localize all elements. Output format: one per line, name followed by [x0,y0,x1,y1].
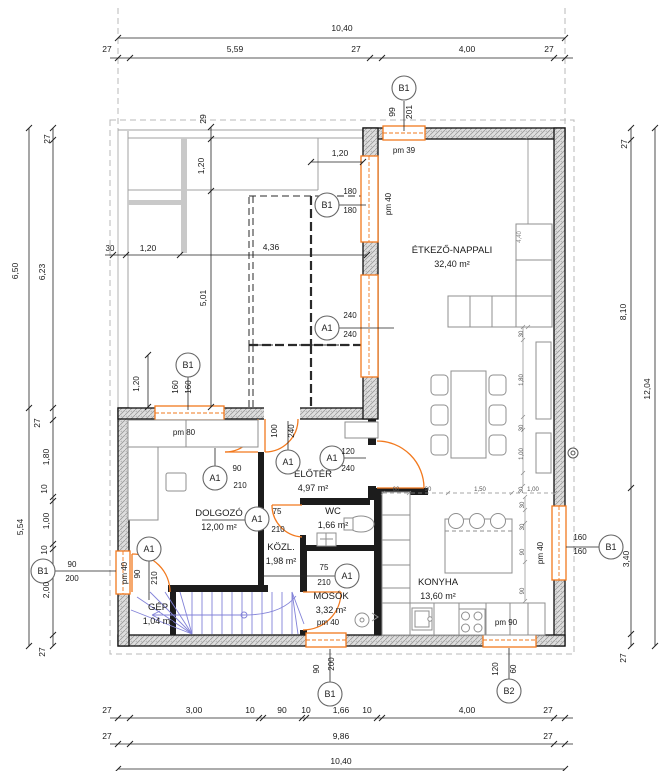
dim-label: 27 [543,731,553,741]
marker-label: B1 [605,542,616,552]
dim-label: 180 [343,187,357,196]
dim-label: 210 [233,481,247,490]
room-name: ÉTKEZŐ-NAPPALI [412,245,493,256]
dim-label: 27 [618,653,628,663]
room-name: WC [325,506,341,517]
dim-label: 6,23 [37,263,47,280]
dim-label: 3,00 [186,705,203,715]
room-label-group: MOSÓK3,32 m² [313,591,349,615]
dim-label: 90 [520,548,526,555]
room-name: KONYHA [418,577,459,588]
dim-label: 27 [351,44,361,54]
dim-label: 100 [270,424,279,438]
room-name: MOSÓK [313,591,349,602]
floor-plan: ÉTKEZŐ-NAPPALI32,40 m²DOLGOZÓ12,00 m²ELŐ… [0,0,671,771]
dim-label: 6,50 [10,262,20,279]
dim-label: 160 [184,380,193,394]
dim-label: 30 [519,424,525,431]
section-marker-b1: B1 [599,535,623,559]
marker-label: B1 [398,83,409,93]
room-area: 1,66 m² [318,520,349,530]
floor-plan-page: ÉTKEZŐ-NAPPALI32,40 m²DOLGOZÓ12,00 m²ELŐ… [0,0,671,771]
dim-label: 30 [106,244,115,253]
section-marker-a1: A1 [245,507,269,531]
section-marker-b1: B1 [176,353,200,377]
dim-label: 27 [32,418,42,428]
dim-label: 240 [343,311,357,320]
dim-label: 10 [301,705,311,715]
dim-label: 5,01 [198,289,208,306]
marker-label: A1 [209,473,220,483]
dim-label: 4,40 [517,231,523,243]
dim-label: 210 [150,571,159,585]
dim-label: 210 [317,578,331,587]
toilet [344,516,374,532]
dim-label: 30 [520,523,526,530]
dim-label: 210 [271,525,285,534]
room-name: KÖZL. [267,542,294,553]
eloter-living-door [377,441,424,488]
dim-label: pm 39 [393,146,416,155]
dim-label: 90 [520,587,526,594]
dim-label: 1,20 [132,376,141,392]
dim-label: 120 [491,662,500,676]
stove [459,609,485,635]
marker-label: A1 [326,453,337,463]
section-marker-a1: A1 [315,316,339,340]
dim-label: 1,00 [41,512,51,529]
room-label-group: ÉTKEZŐ-NAPPALI32,40 m² [412,245,493,269]
dim-label: 27 [543,705,553,715]
dim-label: 75 [273,507,282,516]
dim-label: 75 [320,563,329,572]
dim-label: 240 [341,464,355,473]
dim-label: 90 [312,664,321,673]
dim-label: 10 [39,545,49,555]
dim-label: 1,20 [332,148,349,158]
dim-label: pm 90 [495,618,518,627]
dim-label: 200 [65,574,79,583]
dim-label: 9,86 [333,731,350,741]
window-living-east [552,506,566,580]
dim-label: 10,40 [331,23,353,33]
room-area: 1,98 m² [266,556,297,566]
marker-label: A1 [321,323,332,333]
dim-label: 1,50 [474,487,486,493]
flue-vent [568,448,578,458]
marker-label: A1 [282,457,293,467]
room-area: 32,40 m² [434,259,470,269]
dim-label: 90 [277,705,287,715]
dim-label: 8,10 [618,303,628,320]
dim-label: 1,20 [196,157,206,174]
room-area: 13,60 m² [420,591,456,601]
dim-label: 1,00 [519,448,525,460]
dim-label: pm 40 [384,192,393,215]
radiator [536,342,551,419]
dim-label: 12,04 [642,378,652,400]
dim-label: 10 [39,484,49,494]
section-marker-a1: A1 [203,466,227,490]
dim-label: 10 [362,705,372,715]
section-marker-b1: B1 [392,76,416,100]
terrace-sliding-door [361,275,378,377]
dim-label: 30 [520,501,526,508]
kitchen-island [445,514,512,574]
dim-label: 2,00 [41,581,51,598]
dim-label: 60 [393,487,400,493]
sink [412,608,432,630]
section-marker-b1: B1 [315,193,339,217]
dim-label: 30 [519,330,525,337]
dim-label: 1,80 [41,448,51,465]
window-pm80 [155,406,224,420]
dim-label: pm 80 [173,428,196,437]
dim-label: 4,00 [459,705,476,715]
dim-label: 201 [404,105,414,119]
section-marker-b2: B2 [497,679,521,703]
kitchen-tall-cabinets [382,492,410,603]
dining-table [451,371,486,458]
dim-label: 27 [102,44,112,54]
dim-label: 160 [573,533,587,542]
dim-label: 27 [37,647,47,657]
sofa [448,296,516,327]
dim-label: 90 [233,464,242,473]
room-label-group: ELŐTÉR4,97 m² [294,469,332,493]
dim-label: 90 [425,487,432,493]
room-area: 12,00 m² [201,522,237,532]
marker-label: B1 [324,689,335,699]
dim-label: 5,59 [227,44,244,54]
dim-label: 90 [133,569,142,578]
section-marker-b1: B1 [31,559,55,583]
dim-label: 160 [573,547,587,556]
dim-label: 160 [171,380,180,394]
dim-label: 27 [544,44,554,54]
room-name: DOLGOZÓ [195,508,243,519]
kitchen-counter [382,603,545,635]
room-area: 4,97 m² [298,483,329,493]
section-marker-a1: A1 [276,450,300,474]
dim-label: 240 [287,424,296,438]
marker-label: B1 [182,360,193,370]
dim-label: 120 [341,447,355,456]
stairs [131,592,304,634]
section-marker-a1: A1 [137,537,161,561]
dim-label: pm 40 [120,561,129,584]
dim-label: 90 [68,560,77,569]
window-terrace-upper [361,156,378,242]
marker-label: B1 [37,566,48,576]
marker-label: B2 [503,686,514,696]
dim-label: 4,00 [459,44,476,54]
marker-label: A1 [251,514,262,524]
dim-label: 10,40 [330,756,352,766]
dim-label: 5,54 [15,518,25,535]
marker-label: B1 [321,200,332,210]
section-marker-b1: B1 [318,682,342,706]
dim-label: 30 [519,486,525,493]
dim-label: 29 [198,114,208,124]
hand-basin [317,533,336,546]
dim-label: 1,66 [333,705,350,715]
dim-label: 4,36 [263,242,280,252]
dim-label: pm 40 [536,541,545,564]
room-label-group: KÖZL.1,98 m² [266,542,297,566]
dim-label: 10 [245,705,255,715]
dim-label: 27 [102,705,112,715]
marker-label: A1 [341,571,352,581]
dim-label: 1,20 [140,243,157,253]
dim-label: 27 [42,134,52,144]
entrance-opening [264,407,300,420]
dim-label: 180 [343,206,357,215]
room-name: GÉP [148,602,168,613]
eloter-bench [345,422,378,438]
room-area: 1,04 m² [143,616,174,626]
dim-label: 27 [619,139,629,149]
dim-label: 240 [343,330,357,339]
dim-label: 99 [387,107,397,117]
dim-label: 27 [102,731,112,741]
dim-label: 1,80 [519,374,525,386]
desk-chair [166,473,186,491]
radiator [536,433,551,473]
room-name: ELŐTÉR [294,469,332,480]
dim-label: 1,00 [527,487,539,493]
marker-label: A1 [143,544,154,554]
window-mosok [306,633,346,647]
room-label-group: GÉP1,04 m² [143,602,174,626]
dim-label: 200 [327,657,336,671]
section-marker-a1: A1 [335,564,359,588]
dim-label: 3,40 [621,550,631,567]
room-area: 3,32 m² [316,605,347,615]
room-label-group: KONYHA13,60 m² [418,577,459,601]
dim-label: pm 40 [317,618,340,627]
dim-label: 60 [509,664,518,673]
